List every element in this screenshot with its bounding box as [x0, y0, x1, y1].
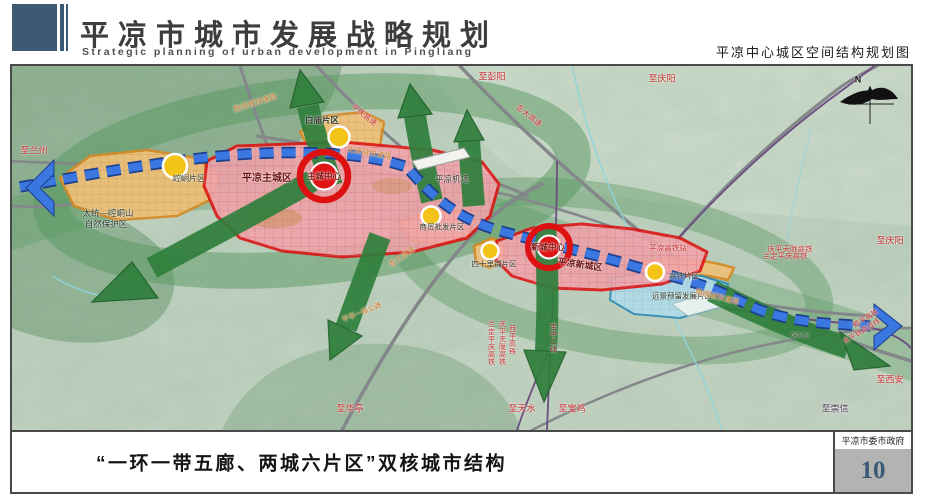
map-label: 至彭阳	[478, 73, 505, 82]
map-label: 商贸批发片区	[420, 223, 465, 231]
map-label: 西平高铁	[509, 325, 516, 355]
map-label: 至天水	[508, 405, 535, 414]
map-label: 崆峒片区	[173, 175, 205, 183]
map-label: G312	[791, 331, 809, 339]
map-label: 新城中心	[531, 243, 565, 252]
map-label: 至兰州	[20, 147, 47, 156]
map-label: 平凉高铁站	[649, 244, 687, 252]
map-label: 太统—崆峒山	[82, 209, 133, 218]
page-subtitle: Strategic planning of urban development …	[82, 46, 473, 58]
map-label: 主城中心	[307, 172, 341, 181]
map-sheet-title: 平凉中心城区空间结构规划图	[716, 42, 911, 61]
header-bar-thin	[66, 4, 68, 51]
map-label: 至华亭	[336, 405, 363, 414]
page-number: 10	[835, 449, 911, 492]
map-label: 白庙片区	[305, 116, 339, 125]
map-label: 平凉机场	[435, 175, 469, 184]
map-label: 至庆阳	[648, 75, 675, 84]
map-label: 宝中二线	[550, 323, 557, 353]
map-label: 平凉主城区	[242, 174, 292, 184]
map-label: 兰定平庆高铁	[763, 252, 808, 260]
corridor-north-2	[469, 140, 474, 206]
map-label: 至崇信	[821, 405, 848, 414]
map-caption: “一环一带五廊、两城六片区”双核城市结构	[96, 449, 507, 476]
map-label: 至宝鸡	[558, 405, 585, 414]
map-label: 四十里铺片区	[472, 260, 517, 268]
map-label: N	[855, 76, 862, 85]
footer: “一环一带五廊、两城六片区”双核城市结构 平凉市委市政府 10	[10, 430, 913, 494]
agency-box: 平凉市委市政府 10	[833, 432, 911, 492]
map-label: 庆平天陇高铁	[499, 321, 506, 366]
header-bar	[60, 4, 64, 51]
agency-name: 平凉市委市政府	[835, 432, 911, 449]
map-label: 高铁片区	[669, 272, 699, 280]
planning-map: N至兰州西绕城快速路平庆高速白庙片区至彭阳彭大高速至庆阳北绕城快速路平凉机场主城…	[10, 64, 913, 432]
map-label: 至庆阳	[876, 237, 903, 246]
header-logo-square	[12, 4, 57, 51]
map-label: 兰定平庆高铁	[488, 321, 495, 366]
map-label: 自然保护区	[85, 220, 128, 229]
plan-page: 平凉市城市发展战略规划 Strategic planning of urban …	[0, 0, 925, 500]
map-label: 至西安	[876, 376, 903, 385]
